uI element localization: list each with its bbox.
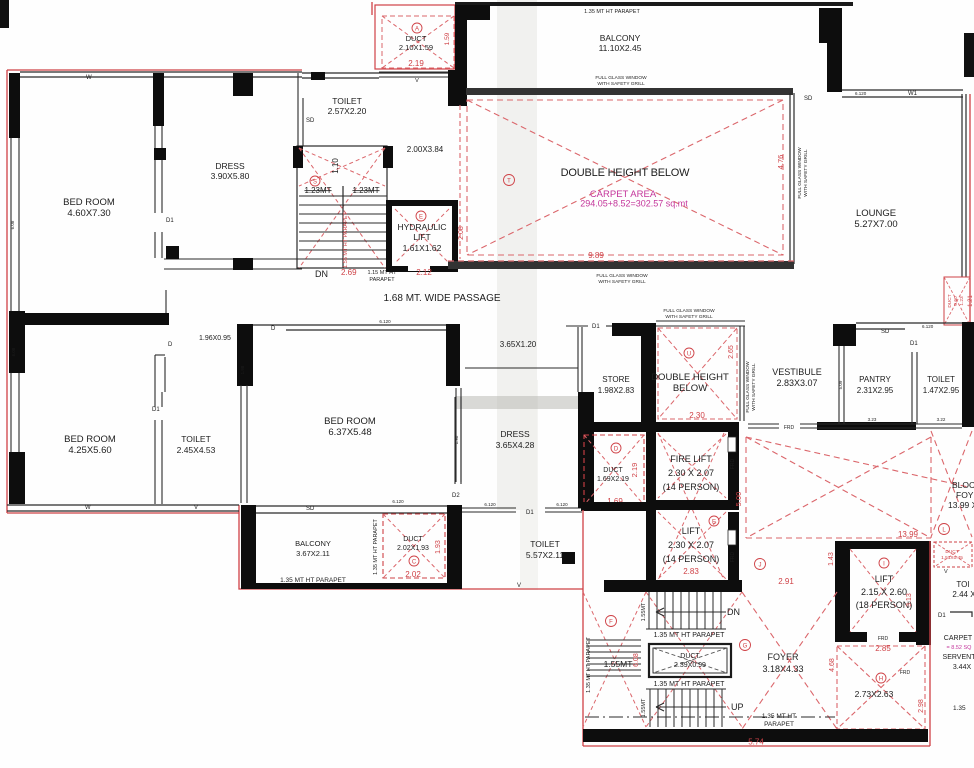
svg-text:W: W xyxy=(85,505,91,511)
svg-text:3.90X5.80: 3.90X5.80 xyxy=(211,171,250,181)
svg-text:6.120: 6.120 xyxy=(922,324,934,329)
svg-text:W: W xyxy=(86,75,92,81)
svg-text:2.45X4.53: 2.45X4.53 xyxy=(177,445,216,455)
svg-text:BALCONY: BALCONY xyxy=(295,539,331,548)
svg-text:4.25X5.60: 4.25X5.60 xyxy=(68,445,111,456)
svg-text:294.05+8.52=302.57 sq.mt: 294.05+8.52=302.57 sq.mt xyxy=(580,199,688,209)
svg-text:1.23MT: 1.23MT xyxy=(304,186,331,195)
svg-text:3.65X1.20: 3.65X1.20 xyxy=(500,340,537,349)
svg-text:2.30: 2.30 xyxy=(689,411,705,420)
svg-text:V: V xyxy=(194,505,198,511)
svg-text:D1: D1 xyxy=(166,218,174,224)
svg-text:V: V xyxy=(517,583,521,589)
svg-text:1.35 MT HT PARAPET: 1.35 MT HT PARAPET xyxy=(280,577,346,584)
svg-text:9.89: 9.89 xyxy=(588,251,604,260)
svg-text:CARPET: CARPET xyxy=(944,635,973,642)
svg-text:BED ROOM: BED ROOM xyxy=(63,197,115,208)
svg-text:WITH SAFETY GRILL: WITH SAFETY GRILL xyxy=(597,81,645,87)
svg-text:C: C xyxy=(412,560,417,566)
svg-text:D: D xyxy=(614,447,619,453)
svg-text:2.73X2.63: 2.73X2.63 xyxy=(855,689,894,699)
svg-text:FULL GLASS WINDOW: FULL GLASS WINDOW xyxy=(663,308,715,314)
svg-text:1.35 MT HT PARAPET: 1.35 MT HT PARAPET xyxy=(584,9,640,15)
svg-text:WITH SAFETY GRILL: WITH SAFETY GRILL xyxy=(665,314,713,320)
svg-text:U: U xyxy=(687,352,691,358)
svg-text:FULL GLASS WINDOW: FULL GLASS WINDOW xyxy=(595,75,647,81)
svg-text:4.68: 4.68 xyxy=(829,658,836,672)
svg-text:2.85: 2.85 xyxy=(875,644,891,653)
svg-text:LIFT: LIFT xyxy=(875,574,894,584)
svg-text:6.08: 6.08 xyxy=(11,347,16,356)
svg-text:D2: D2 xyxy=(452,493,460,499)
svg-text:FRD: FRD xyxy=(878,636,889,642)
svg-text:1.98X2.83: 1.98X2.83 xyxy=(598,386,635,395)
svg-text:SERVENT: SERVENT xyxy=(943,654,974,661)
svg-text:PARAPET: PARAPET xyxy=(764,721,794,728)
svg-text:(14 PERSON): (14 PERSON) xyxy=(663,554,720,564)
svg-text:STORE: STORE xyxy=(602,375,629,384)
svg-text:BLOCK: BLOCK xyxy=(952,480,974,490)
svg-text:PARAPET: PARAPET xyxy=(369,277,395,283)
svg-text:T: T xyxy=(507,179,511,185)
svg-text:2.30 X 2.07: 2.30 X 2.07 xyxy=(668,468,714,478)
svg-text:3.67X2.11: 3.67X2.11 xyxy=(296,549,330,558)
svg-text:LOUNGE: LOUNGE xyxy=(856,208,896,219)
svg-text:DOUBLE HEIGHT: DOUBLE HEIGHT xyxy=(651,372,729,383)
svg-text:6.08: 6.08 xyxy=(633,653,640,667)
svg-text:2.19: 2.19 xyxy=(630,463,639,478)
svg-text:FRD: FRD xyxy=(730,551,736,562)
svg-text:A: A xyxy=(415,27,419,33)
svg-text:0.60: 0.60 xyxy=(953,296,959,306)
svg-text:2.30 X 2.07: 2.30 X 2.07 xyxy=(668,540,714,550)
svg-text:UP: UP xyxy=(731,702,744,712)
svg-text:DUCT: DUCT xyxy=(603,467,623,474)
svg-text:DRESS: DRESS xyxy=(500,429,530,439)
svg-text:2.65: 2.65 xyxy=(728,345,735,359)
svg-text:DUCT: DUCT xyxy=(945,549,958,555)
svg-text:11.10X2.45: 11.10X2.45 xyxy=(599,43,642,53)
svg-text:3.23: 3.23 xyxy=(868,417,877,422)
svg-text:DRESS: DRESS xyxy=(215,161,245,171)
svg-text:2.15 X 2.60: 2.15 X 2.60 xyxy=(861,587,907,597)
svg-text:1.98: 1.98 xyxy=(240,365,245,374)
svg-text:2.98: 2.98 xyxy=(918,699,925,713)
svg-text:(14 PERSON): (14 PERSON) xyxy=(663,482,720,492)
svg-text:J: J xyxy=(759,563,762,569)
svg-text:BED ROOM: BED ROOM xyxy=(324,416,376,427)
svg-text:TOILET: TOILET xyxy=(927,375,955,384)
svg-text:BALCONY: BALCONY xyxy=(600,33,641,43)
svg-text:1.43: 1.43 xyxy=(828,552,835,566)
svg-text:1.69X2.19: 1.69X2.19 xyxy=(597,476,629,483)
svg-text:3.65X4.28: 3.65X4.28 xyxy=(496,440,535,450)
svg-text:TOI: TOI xyxy=(956,580,969,589)
svg-text:2.39X0.99: 2.39X0.99 xyxy=(674,662,706,669)
svg-text:FRD: FRD xyxy=(730,458,736,469)
svg-text:5.57X2.11: 5.57X2.11 xyxy=(526,550,564,560)
svg-text:1.35 MT HT PARAPET: 1.35 MT HT PARAPET xyxy=(654,632,726,639)
svg-text:2.12: 2.12 xyxy=(416,268,432,277)
svg-text:BELOW: BELOW xyxy=(673,383,707,394)
svg-text:6.120: 6.120 xyxy=(392,499,404,504)
svg-text:TOILET: TOILET xyxy=(530,539,560,549)
svg-text:2.91: 2.91 xyxy=(778,577,794,586)
svg-text:1.68 MT. WIDE PASSAGE: 1.68 MT. WIDE PASSAGE xyxy=(383,293,500,304)
svg-text:SD: SD xyxy=(306,118,315,124)
svg-text:1.51X0.45: 1.51X0.45 xyxy=(941,555,963,561)
svg-text:2.31X2.95: 2.31X2.95 xyxy=(857,386,894,395)
svg-text:DUCT: DUCT xyxy=(403,536,423,543)
svg-text:H: H xyxy=(879,677,883,683)
svg-text:FRD: FRD xyxy=(900,670,911,676)
svg-text:FIRE LIFT: FIRE LIFT xyxy=(670,454,712,464)
svg-text:SD: SD xyxy=(804,96,813,102)
svg-text:D1: D1 xyxy=(938,613,946,619)
svg-text:E: E xyxy=(712,520,716,526)
svg-text:2.44 X: 2.44 X xyxy=(952,590,974,599)
svg-text:D1: D1 xyxy=(592,324,600,330)
svg-text:D: D xyxy=(271,326,276,332)
svg-text:2.10X1.59: 2.10X1.59 xyxy=(399,43,433,52)
svg-text:DN: DN xyxy=(727,607,740,617)
svg-text:2.19: 2.19 xyxy=(408,59,424,68)
svg-text:4.60X7.30: 4.60X7.30 xyxy=(67,208,110,219)
svg-text:1.35 MT HT PARAPET: 1.35 MT HT PARAPET xyxy=(373,519,379,575)
svg-text:1.23: 1.23 xyxy=(959,296,965,306)
svg-text:2.08: 2.08 xyxy=(458,226,465,240)
svg-text:G: G xyxy=(743,644,748,650)
svg-text:D: D xyxy=(168,342,173,348)
svg-text:2.00X3.84: 2.00X3.84 xyxy=(407,145,444,154)
svg-text:V: V xyxy=(944,569,948,575)
svg-text:1.96X0.95: 1.96X0.95 xyxy=(199,335,231,342)
svg-text:LIFT: LIFT xyxy=(413,232,430,242)
svg-text:2.02X1.93: 2.02X1.93 xyxy=(397,545,429,552)
svg-text:1.55 MT HT PARAPET: 1.55 MT HT PARAPET xyxy=(343,212,349,268)
svg-text:3.22: 3.22 xyxy=(937,417,946,422)
svg-text:5.27X7.00: 5.27X7.00 xyxy=(854,219,897,230)
svg-text:E: E xyxy=(419,215,423,221)
svg-text:W1: W1 xyxy=(908,91,918,97)
svg-text:1.35: 1.35 xyxy=(953,705,966,712)
svg-text:2.83X3.07: 2.83X3.07 xyxy=(776,378,817,388)
svg-text:1.61X1.62: 1.61X1.62 xyxy=(403,243,442,253)
svg-text:2.69: 2.69 xyxy=(341,268,357,277)
svg-text:1.55MT: 1.55MT xyxy=(641,602,647,621)
svg-text:TOILET: TOILET xyxy=(181,434,211,444)
svg-text:1.59: 1.59 xyxy=(444,32,451,45)
svg-text:TOILET: TOILET xyxy=(332,96,362,106)
svg-text:1.47X2.95: 1.47X2.95 xyxy=(923,386,960,395)
svg-text:= 8.52 SQ: = 8.52 SQ xyxy=(947,645,973,651)
svg-text:4.76: 4.76 xyxy=(776,155,785,170)
svg-text:F: F xyxy=(609,620,613,626)
svg-text:2.83: 2.83 xyxy=(683,567,699,576)
svg-text:1.93: 1.93 xyxy=(435,540,442,554)
svg-text:SD: SD xyxy=(306,506,315,512)
svg-text:(18 PERSON): (18 PERSON) xyxy=(856,600,913,610)
svg-text:6.120: 6.120 xyxy=(379,319,391,324)
svg-text:DUCT: DUCT xyxy=(680,653,700,660)
svg-text:1.55MT: 1.55MT xyxy=(604,659,633,669)
svg-text:LIFT: LIFT xyxy=(682,526,701,536)
svg-text:WITH SAFETY GRILL: WITH SAFETY GRILL xyxy=(751,363,757,411)
svg-text:1.23MT: 1.23MT xyxy=(352,186,379,195)
svg-text:WITH SAFETY GRILL: WITH SAFETY GRILL xyxy=(803,149,809,197)
svg-text:3.13: 3.13 xyxy=(906,593,913,607)
svg-text:D1: D1 xyxy=(910,341,918,347)
svg-text:1.21: 1.21 xyxy=(968,295,974,307)
svg-text:1.35 MT HT PARAPET: 1.35 MT HT PARAPET xyxy=(586,637,592,693)
svg-text:5.00: 5.00 xyxy=(734,492,743,507)
svg-text:6.08: 6.08 xyxy=(10,220,15,229)
svg-text:FULL GLASS WINDOW: FULL GLASS WINDOW xyxy=(745,361,751,413)
svg-text:V: V xyxy=(415,78,419,84)
svg-text:DUCT: DUCT xyxy=(406,34,427,43)
svg-text:FOYER: FOYER xyxy=(956,490,974,500)
svg-text:DUCT: DUCT xyxy=(947,294,953,307)
svg-text:S: S xyxy=(313,180,317,186)
svg-text:6.120: 6.120 xyxy=(855,91,867,96)
svg-text:DN: DN xyxy=(315,269,328,279)
svg-text:DOUBLE HEIGHT BELOW: DOUBLE HEIGHT BELOW xyxy=(561,167,690,179)
svg-text:5.09: 5.09 xyxy=(838,380,843,389)
svg-text:FULL GLASS WINDOW: FULL GLASS WINDOW xyxy=(596,273,648,279)
svg-text:1.35 MT HT PARAPET: 1.35 MT HT PARAPET xyxy=(654,681,726,688)
svg-text:6.120: 6.120 xyxy=(556,502,568,507)
svg-text:VESTIBULE: VESTIBULE xyxy=(772,367,822,377)
svg-text:3.44X: 3.44X xyxy=(953,664,972,671)
svg-text:2.02: 2.02 xyxy=(405,570,421,579)
svg-text:SD: SD xyxy=(881,329,890,335)
svg-text:FULL GLASS WINDOW: FULL GLASS WINDOW xyxy=(797,147,803,199)
svg-text:2.57X2.20: 2.57X2.20 xyxy=(328,106,367,116)
svg-text:HYDRAULIC: HYDRAULIC xyxy=(397,222,446,232)
svg-text:5.74: 5.74 xyxy=(748,738,764,747)
svg-text:FRD: FRD xyxy=(784,425,795,431)
svg-text:D1: D1 xyxy=(152,407,160,413)
svg-text:6.37X5.48: 6.37X5.48 xyxy=(328,427,371,438)
svg-text:D1: D1 xyxy=(526,510,534,516)
svg-text:1.10: 1.10 xyxy=(331,158,340,174)
svg-text:13.99 X: 13.99 X xyxy=(948,500,974,510)
svg-text:PANTRY: PANTRY xyxy=(859,375,891,384)
svg-text:WITH SAFETY GRILL: WITH SAFETY GRILL xyxy=(598,279,646,285)
svg-text:1.35 MT HT: 1.35 MT HT xyxy=(762,713,796,720)
svg-text:6.120: 6.120 xyxy=(484,502,496,507)
svg-text:1.55MT: 1.55MT xyxy=(641,698,647,717)
svg-text:BED ROOM: BED ROOM xyxy=(64,434,116,445)
